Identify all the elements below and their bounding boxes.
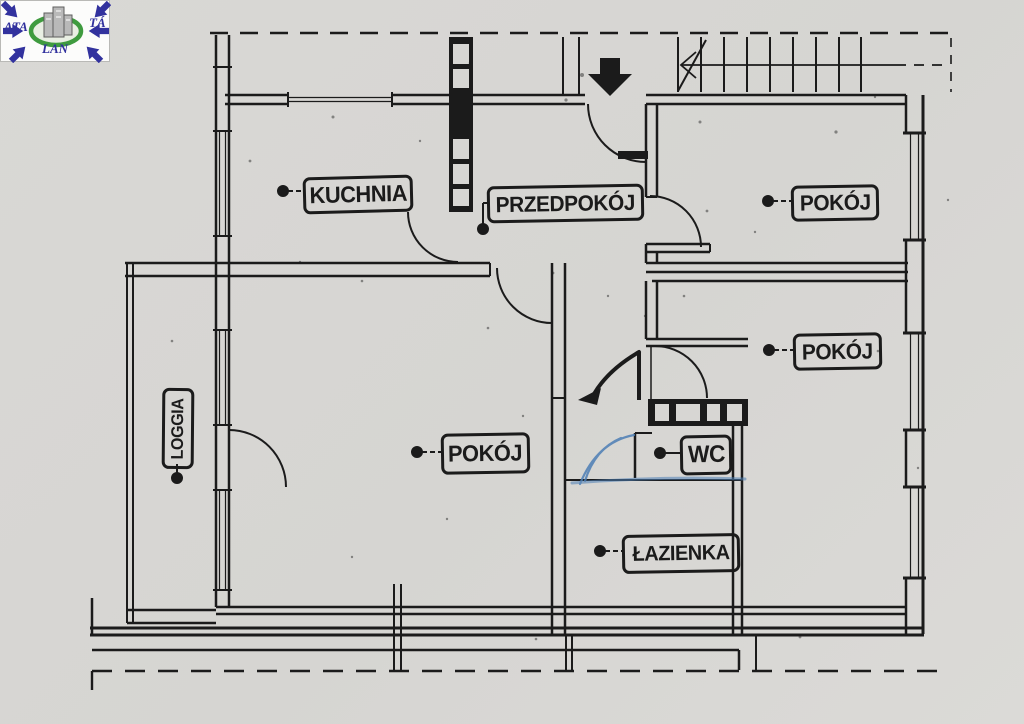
center-room-door-arc	[497, 268, 552, 323]
room-label-text: PRZEDPOKÓJ	[496, 189, 636, 217]
wc-door-swing-arrow	[578, 352, 639, 405]
room-label-pokoj-mid-right: POKÓJ	[793, 332, 883, 371]
mid-right-room-door-arc	[655, 346, 707, 398]
scanned-floor-plan-page: KUCHNIA PRZEDPOKÓJ POKÓJ POKÓJ POKÓJ WC …	[0, 0, 1024, 724]
loggia-door-arc	[229, 430, 286, 487]
room-label-loggia: LOGGIA	[162, 388, 195, 469]
logo-text-left: ATA	[4, 19, 28, 35]
room-label-text: WC	[687, 441, 725, 470]
room-label-lazienka: ŁAZIENKA	[622, 533, 741, 574]
room-label-pokoj-top-right: POKÓJ	[791, 184, 880, 222]
logo-buildings-icon	[44, 7, 72, 37]
logo-text-right: TÁ	[89, 15, 106, 31]
room-label-przedpokoj: PRZEDPOKÓJ	[487, 184, 645, 224]
room-label-kuchnia: KUCHNIA	[303, 175, 414, 215]
room-label-text: POKÓJ	[799, 189, 870, 216]
entrance-door-leaf	[618, 151, 648, 159]
room-label-text: KUCHNIA	[309, 180, 407, 210]
room-label-pokoj-center: POKÓJ	[441, 432, 531, 475]
room-label-text: POKÓJ	[802, 338, 873, 365]
agency-logo: ATA TÁ LAN	[0, 0, 110, 62]
logo-text-bottom: LAN	[42, 41, 68, 57]
room-label-text: ŁAZIENKA	[632, 541, 729, 567]
top-right-room-door-arc	[650, 196, 701, 247]
entrance-arrow-icon	[588, 58, 632, 96]
room-label-text: POKÓJ	[448, 439, 523, 467]
room-label-text: LOGGIA	[168, 398, 189, 459]
staircase	[678, 37, 948, 92]
room-label-wc: WC	[680, 435, 733, 476]
kitchen-door-arc	[408, 212, 458, 262]
